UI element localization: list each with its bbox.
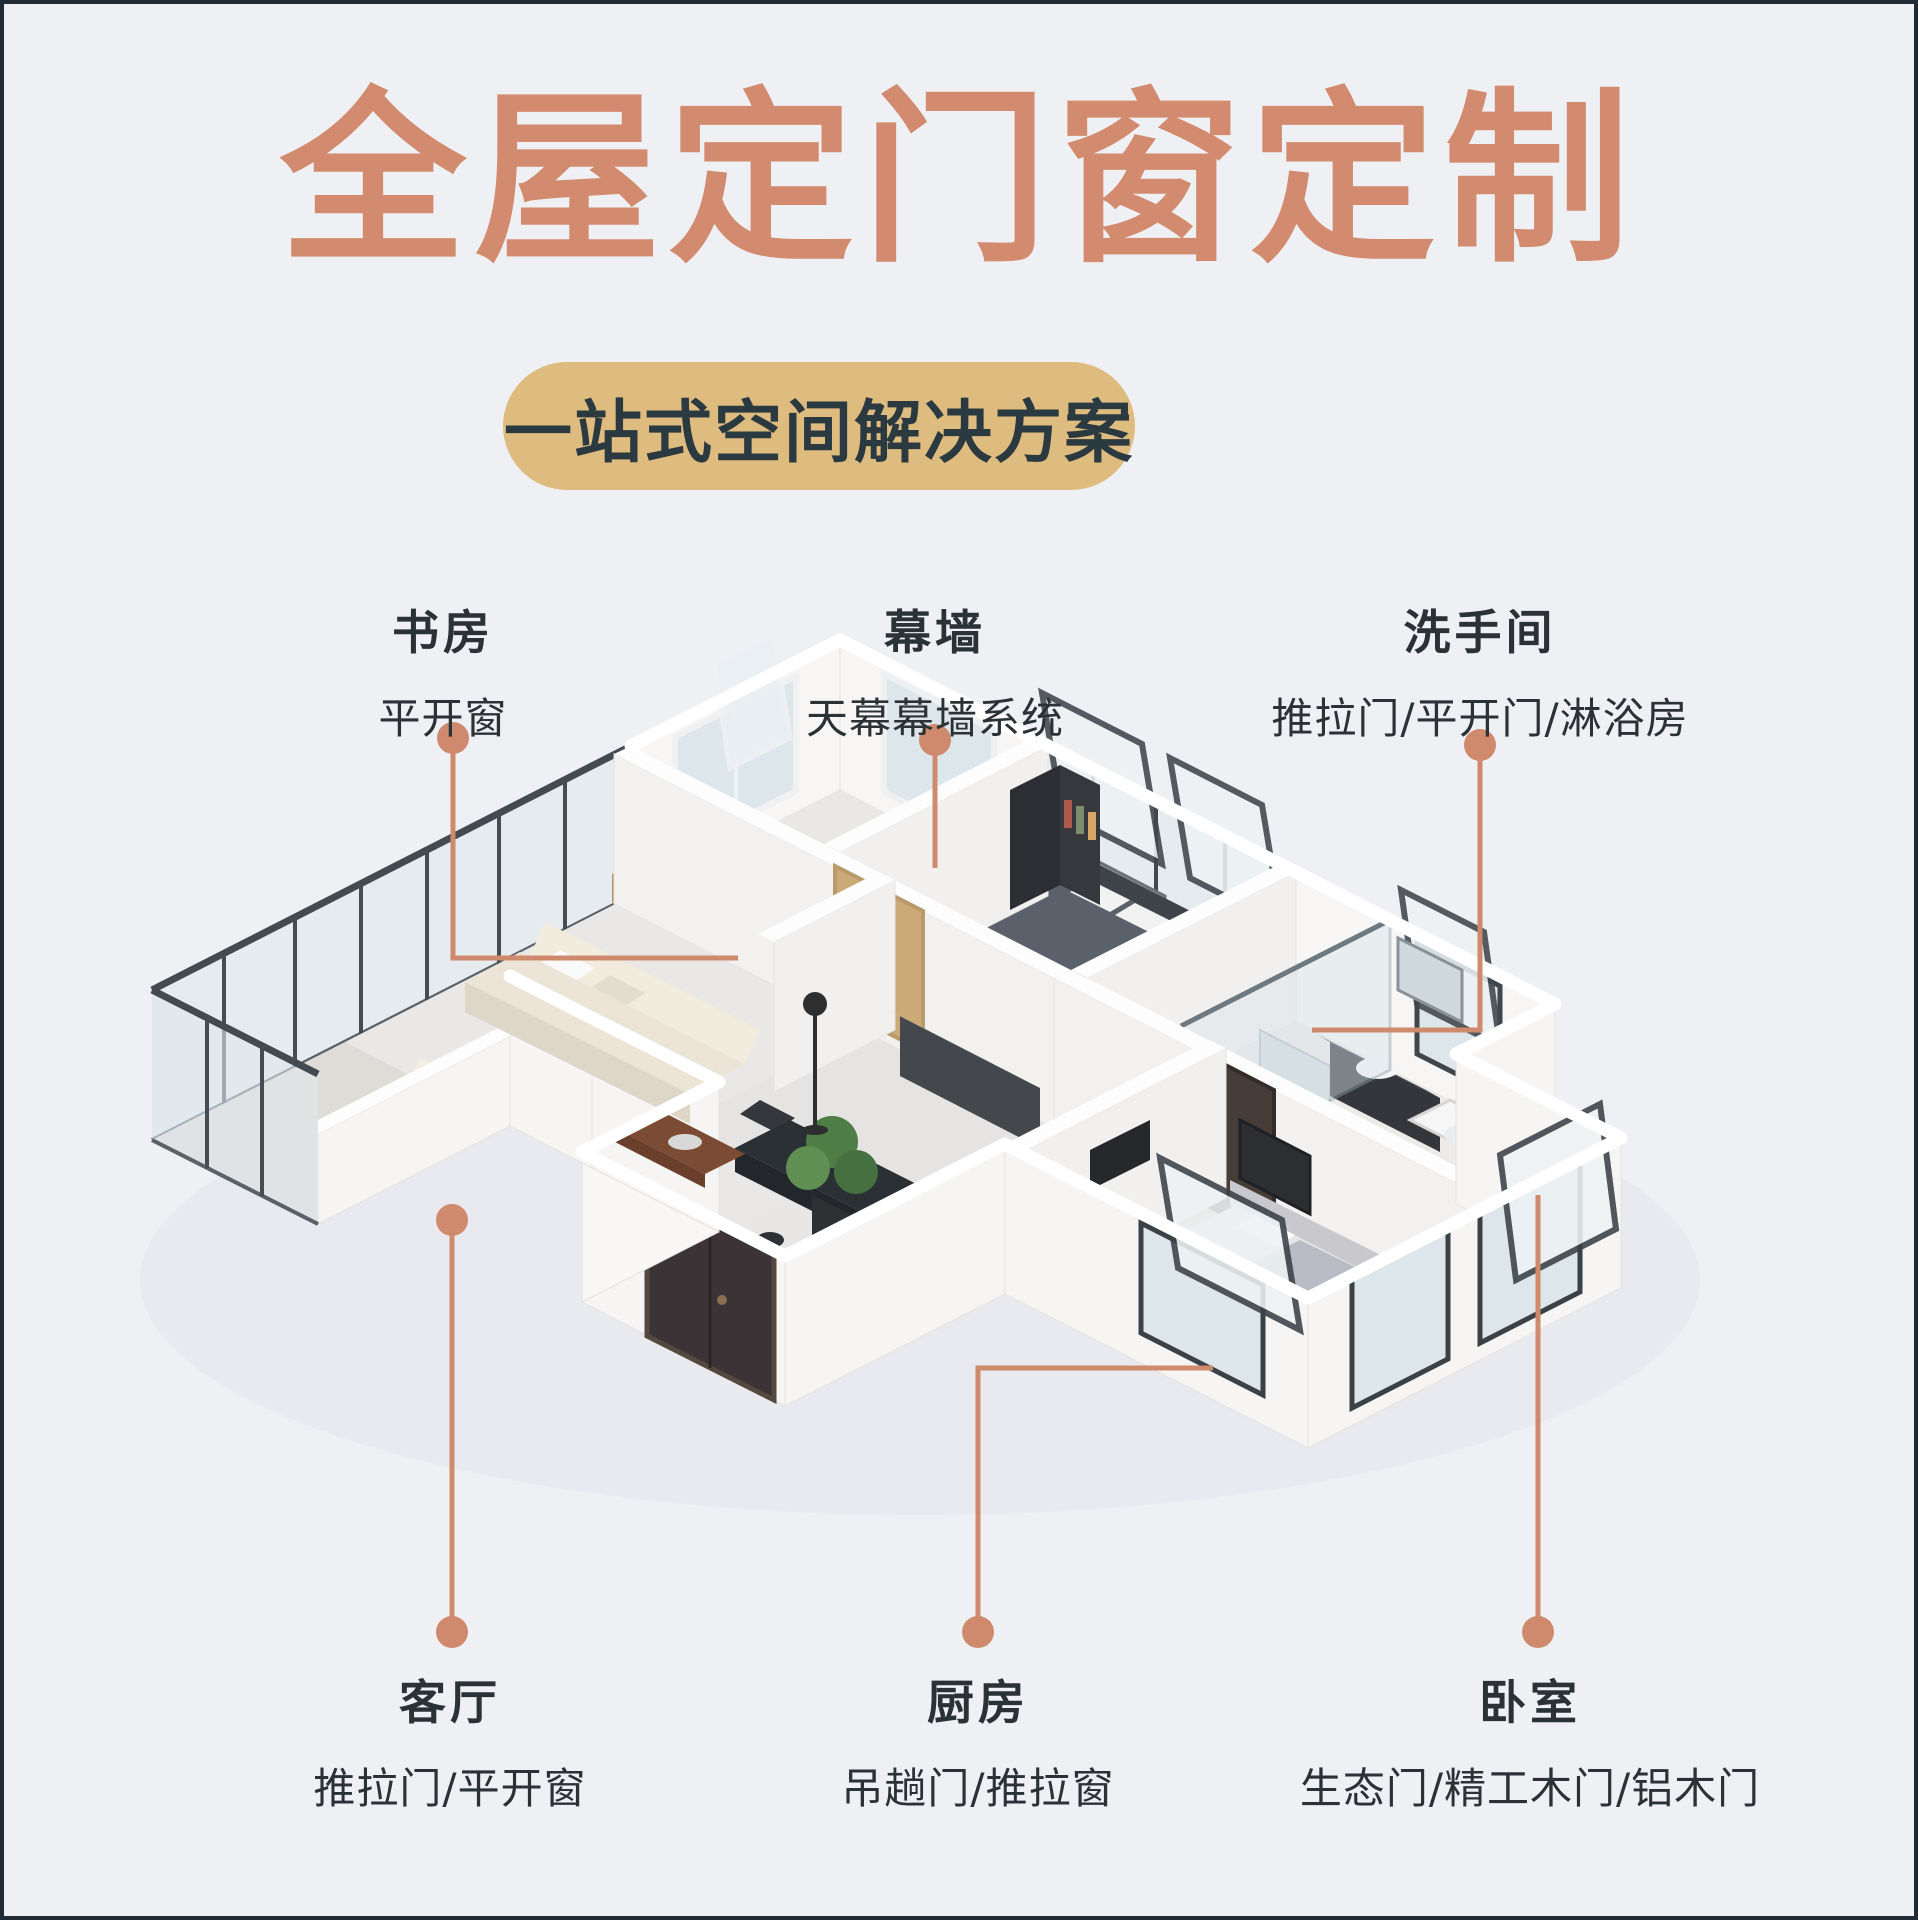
leader-dot (962, 1616, 994, 1648)
callout-curtain-wall: 幕墙 天幕幕墙系统 (806, 594, 1064, 746)
leader-dot (1522, 1616, 1554, 1648)
room-name: 客厅 (313, 1664, 586, 1733)
callout-bedroom: 卧室 生态门/精工木门/铝木门 (1300, 1664, 1760, 1816)
room-products: 吊趟门/推拉窗 (841, 1755, 1114, 1816)
room-name: 洗手间 (1271, 594, 1688, 663)
poster: 全屋定门窗定制 一站式空间解决方案 (0, 0, 1918, 1920)
room-name: 厨房 (841, 1664, 1114, 1733)
room-products: 天幕幕墙系统 (806, 685, 1064, 746)
leader-dot (436, 1616, 468, 1648)
room-products: 生态门/精工木门/铝木门 (1300, 1755, 1760, 1816)
room-products: 推拉门/平开门/淋浴房 (1271, 685, 1688, 746)
floorplan-illustration (0, 0, 1918, 1920)
room-name: 书房 (378, 594, 507, 663)
room-products: 平开窗 (378, 685, 507, 746)
room-name: 卧室 (1300, 1664, 1760, 1733)
callout-study: 书房 平开窗 (378, 594, 507, 746)
room-name: 幕墙 (806, 594, 1064, 663)
callout-bathroom: 洗手间 推拉门/平开门/淋浴房 (1271, 594, 1688, 746)
callout-living-room: 客厅 推拉门/平开窗 (313, 1664, 586, 1816)
leader-dot (436, 1204, 468, 1236)
callout-kitchen: 厨房 吊趟门/推拉窗 (841, 1664, 1114, 1816)
room-products: 推拉门/平开窗 (313, 1755, 586, 1816)
